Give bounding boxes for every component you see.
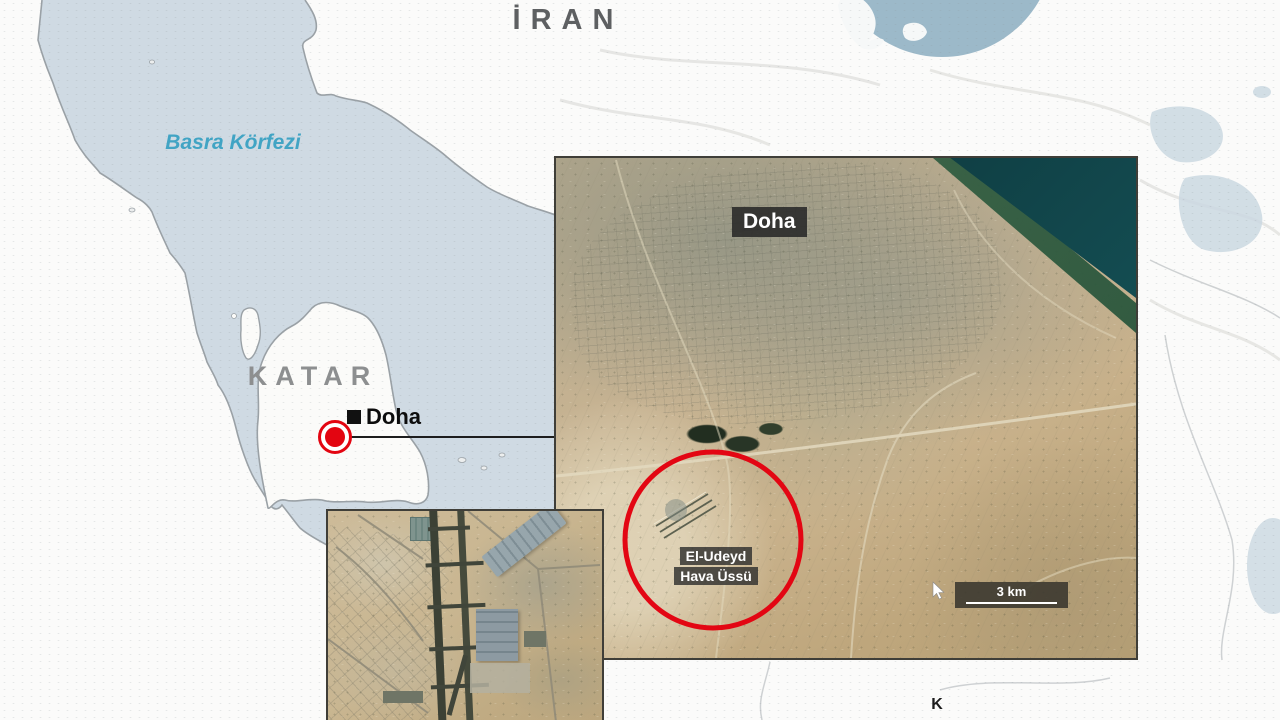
- building: [524, 631, 546, 647]
- airbase-label-line2: Hava Üssü: [674, 567, 758, 585]
- country-label-katar: KATAR: [213, 361, 413, 392]
- north-label: K: [931, 696, 943, 713]
- hangar-cluster: [476, 609, 518, 661]
- scale-bar-label: 3 km: [997, 584, 1027, 599]
- city-square-icon: [347, 410, 361, 424]
- bahrain-islet: [232, 314, 237, 319]
- highlight-circle: [625, 452, 801, 628]
- map-graphic: İRAN Basra Körfezi KATAR Doha: [0, 0, 1280, 720]
- satellite-inset-airbase-closeup: [326, 509, 604, 720]
- capital-marker-doha: Doha: [347, 404, 421, 430]
- scale-bar: 3 km: [955, 582, 1068, 608]
- apron-area: [470, 663, 530, 693]
- sea-label-basra-korfezi: Basra Körfezi: [108, 131, 358, 155]
- inset-connector-line: [350, 436, 558, 438]
- north-indicator: K: [922, 696, 952, 714]
- satellite-inset-doha-region: Doha El-Udeyd Hava Üssü 3 km: [554, 156, 1138, 660]
- airbase-label-line1: El-Udeyd: [680, 547, 753, 565]
- cursor-icon: [932, 581, 946, 601]
- country-label-iran: İRAN: [468, 4, 668, 37]
- capital-label: Doha: [366, 404, 421, 430]
- airbase-label: El-Udeyd Hava Üssü: [616, 545, 816, 585]
- airbase-runway-hints: [656, 494, 716, 538]
- building: [383, 691, 423, 703]
- location-marker-icon: [318, 420, 352, 454]
- satellite-city-label: Doha: [732, 207, 807, 237]
- scale-bar-line: [966, 602, 1057, 604]
